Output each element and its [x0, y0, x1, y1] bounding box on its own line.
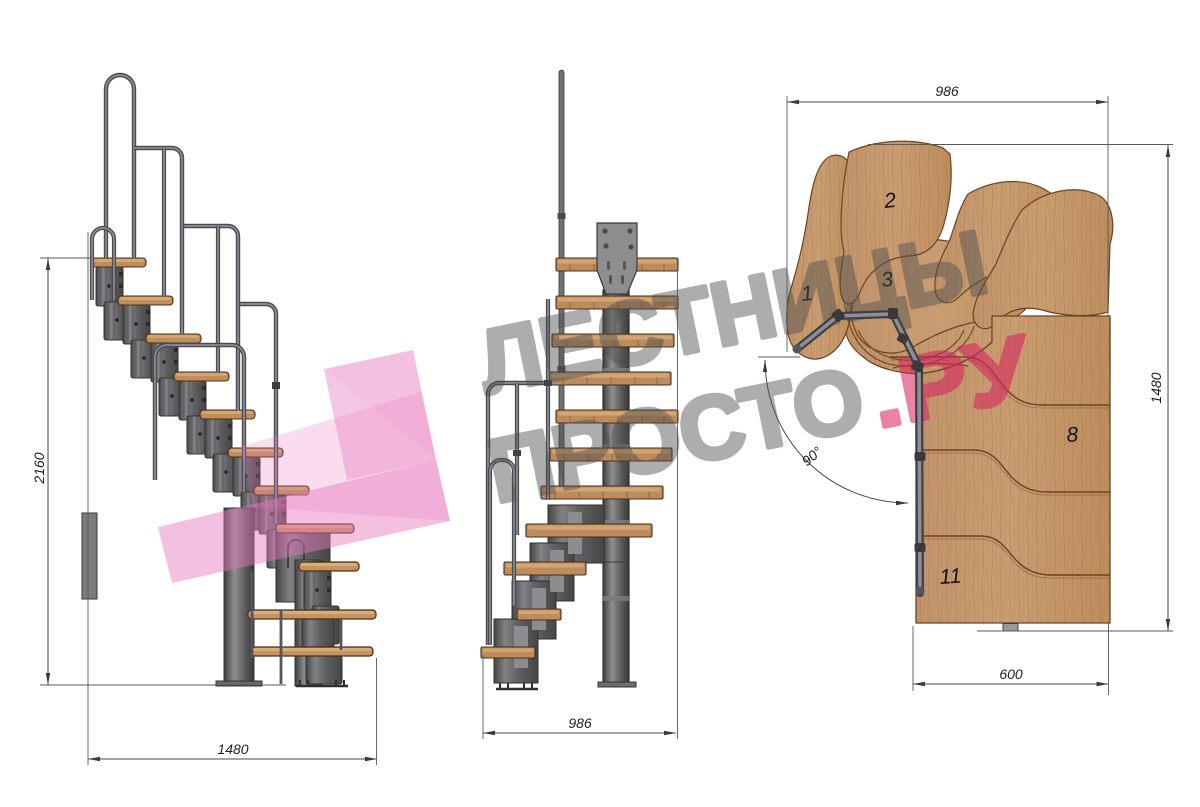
svg-text:986: 986 [935, 83, 959, 99]
svg-text:986: 986 [568, 715, 592, 731]
svg-text:11: 11 [939, 565, 962, 589]
svg-text:600: 600 [999, 666, 1023, 682]
svg-text:1480: 1480 [217, 741, 248, 757]
svg-text:2160: 2160 [31, 452, 47, 484]
svg-text:8: 8 [1066, 423, 1080, 447]
svg-text:1480: 1480 [1148, 372, 1164, 403]
